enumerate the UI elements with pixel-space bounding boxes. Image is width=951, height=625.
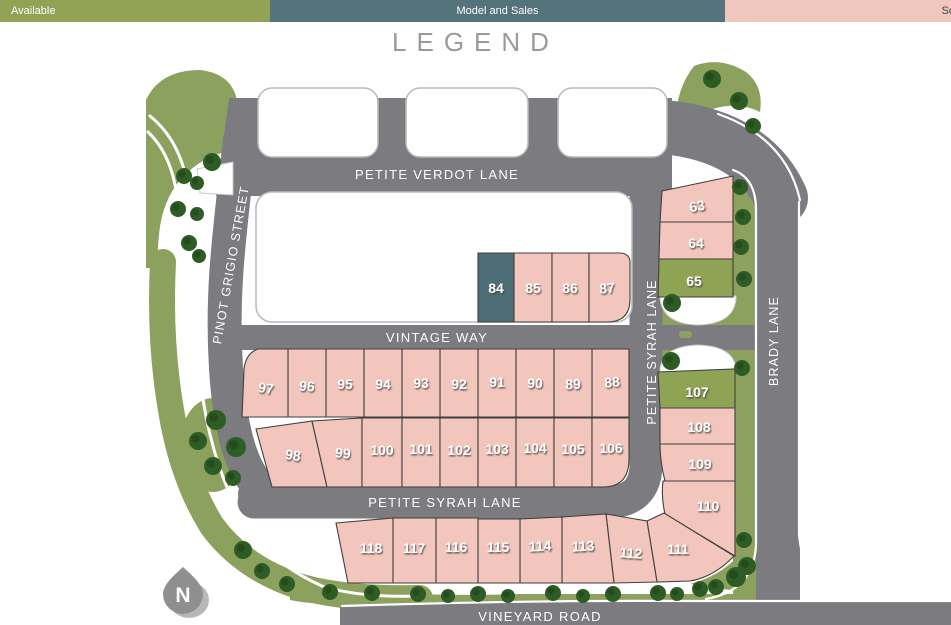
road-vineyard: [340, 602, 951, 625]
lot-84[interactable]: 84: [478, 253, 514, 322]
parcel-block-2: [406, 88, 528, 157]
lot-90[interactable]: 90: [516, 349, 554, 417]
svg-text:105: 105: [561, 441, 585, 457]
svg-text:98: 98: [284, 446, 302, 464]
lot-116[interactable]: 116: [436, 518, 478, 583]
svg-text:95: 95: [337, 376, 353, 392]
svg-text:99: 99: [335, 444, 352, 461]
legend-item-model-and-sales: Model and Sales: [270, 0, 725, 22]
svg-text:113: 113: [571, 537, 595, 554]
svg-text:108: 108: [687, 419, 711, 435]
svg-text:93: 93: [413, 375, 429, 391]
lot-87[interactable]: 87: [589, 253, 630, 322]
lot-85[interactable]: 85: [514, 253, 552, 322]
lot-108[interactable]: 108: [660, 408, 735, 444]
svg-text:86: 86: [562, 280, 578, 296]
svg-text:64: 64: [688, 235, 704, 251]
north-indicator-label: N: [175, 584, 190, 607]
svg-text:109: 109: [688, 456, 712, 472]
lot-93[interactable]: 93: [402, 349, 440, 417]
legend-item-model-and-sales-label: Model and Sales: [457, 5, 539, 17]
svg-text:112: 112: [619, 544, 643, 562]
landscape-right-strip: [733, 168, 756, 594]
lot-96[interactable]: 96: [288, 349, 326, 417]
svg-text:114: 114: [528, 537, 552, 554]
street-label-petite-syrah-horizontal: PETITE SYRAH LANE: [368, 495, 522, 510]
svg-text:90: 90: [527, 375, 543, 391]
parcel-block-3: [558, 88, 667, 157]
lot-113[interactable]: 113: [562, 514, 614, 583]
lot-95[interactable]: 95: [326, 349, 364, 417]
svg-text:85: 85: [525, 280, 541, 296]
lot-117[interactable]: 117: [393, 518, 436, 583]
legend-bar: Available Model and Sales Sold: [0, 0, 951, 22]
legend-item-available: Available: [0, 0, 270, 22]
lot-91[interactable]: 91: [478, 349, 516, 417]
lot-115[interactable]: 115: [478, 519, 520, 583]
svg-text:116: 116: [445, 539, 468, 555]
legend-item-sold-label: Sold: [941, 5, 951, 17]
lot-107[interactable]: 107: [658, 369, 735, 408]
street-label-vintage-way: VINTAGE WAY: [386, 330, 488, 345]
lot-88[interactable]: 88: [592, 349, 629, 417]
svg-text:88: 88: [603, 373, 620, 391]
legend-item-sold: Sold: [725, 0, 951, 22]
north-indicator: N: [163, 567, 209, 618]
street-label-vineyard: VINEYARD ROAD: [478, 609, 602, 624]
svg-text:101: 101: [409, 441, 433, 457]
lot-101[interactable]: 101: [402, 418, 440, 487]
svg-text:92: 92: [451, 376, 467, 392]
lot-104[interactable]: 104: [516, 418, 554, 487]
svg-text:96: 96: [299, 377, 316, 394]
svg-text:102: 102: [447, 442, 471, 458]
street-label-brady: BRADY LANE: [767, 296, 781, 386]
site-map: 63 64 65 84 85 86 87 88 89 90 91 92 93 9…: [0, 0, 951, 625]
street-label-petite-verdot: PETITE VERDOT LANE: [355, 167, 519, 182]
legend-title: LEGEND: [0, 27, 951, 58]
svg-text:94: 94: [375, 376, 391, 392]
lot-100[interactable]: 100: [362, 418, 402, 487]
svg-text:107: 107: [685, 384, 709, 400]
lot-89[interactable]: 89: [554, 349, 592, 417]
lot-94[interactable]: 94: [364, 349, 402, 417]
svg-text:118: 118: [360, 540, 383, 556]
svg-text:65: 65: [686, 273, 702, 289]
road-vintage-way: [233, 325, 757, 350]
lot-65[interactable]: 65: [658, 259, 733, 297]
vintage-median: [679, 331, 692, 338]
curb-brady-east: [799, 202, 861, 600]
lot-64[interactable]: 64: [659, 222, 733, 259]
svg-text:89: 89: [565, 376, 582, 393]
lot-97[interactable]: 97: [242, 349, 288, 417]
svg-text:63: 63: [688, 197, 706, 215]
lot-103[interactable]: 103: [478, 418, 516, 487]
road-brady: [756, 196, 800, 625]
svg-text:104: 104: [523, 440, 547, 456]
svg-text:106: 106: [599, 440, 623, 456]
road-junction-patch: [238, 478, 270, 510]
svg-text:84: 84: [488, 280, 504, 296]
svg-text:103: 103: [485, 441, 509, 457]
lot-114[interactable]: 114: [520, 517, 562, 583]
svg-text:87: 87: [599, 279, 616, 296]
lot-102[interactable]: 102: [440, 418, 478, 487]
lot-86[interactable]: 86: [552, 253, 589, 322]
legend-item-available-label: Available: [11, 5, 55, 17]
svg-text:97: 97: [257, 379, 275, 397]
lot-106[interactable]: 106: [592, 418, 629, 487]
lot-109[interactable]: 109: [660, 444, 735, 481]
svg-text:110: 110: [697, 498, 720, 514]
svg-text:111: 111: [667, 541, 689, 557]
street-label-petite-syrah-vertical: PETITE SYRAH LANE: [645, 279, 659, 424]
lot-118[interactable]: 118: [336, 518, 393, 583]
svg-text:100: 100: [370, 442, 394, 458]
svg-text:115: 115: [487, 539, 510, 555]
svg-text:91: 91: [489, 374, 505, 390]
svg-text:117: 117: [403, 540, 426, 556]
parcel-block-1: [258, 88, 378, 157]
lot-105[interactable]: 105: [554, 418, 592, 487]
lot-92[interactable]: 92: [440, 349, 478, 417]
